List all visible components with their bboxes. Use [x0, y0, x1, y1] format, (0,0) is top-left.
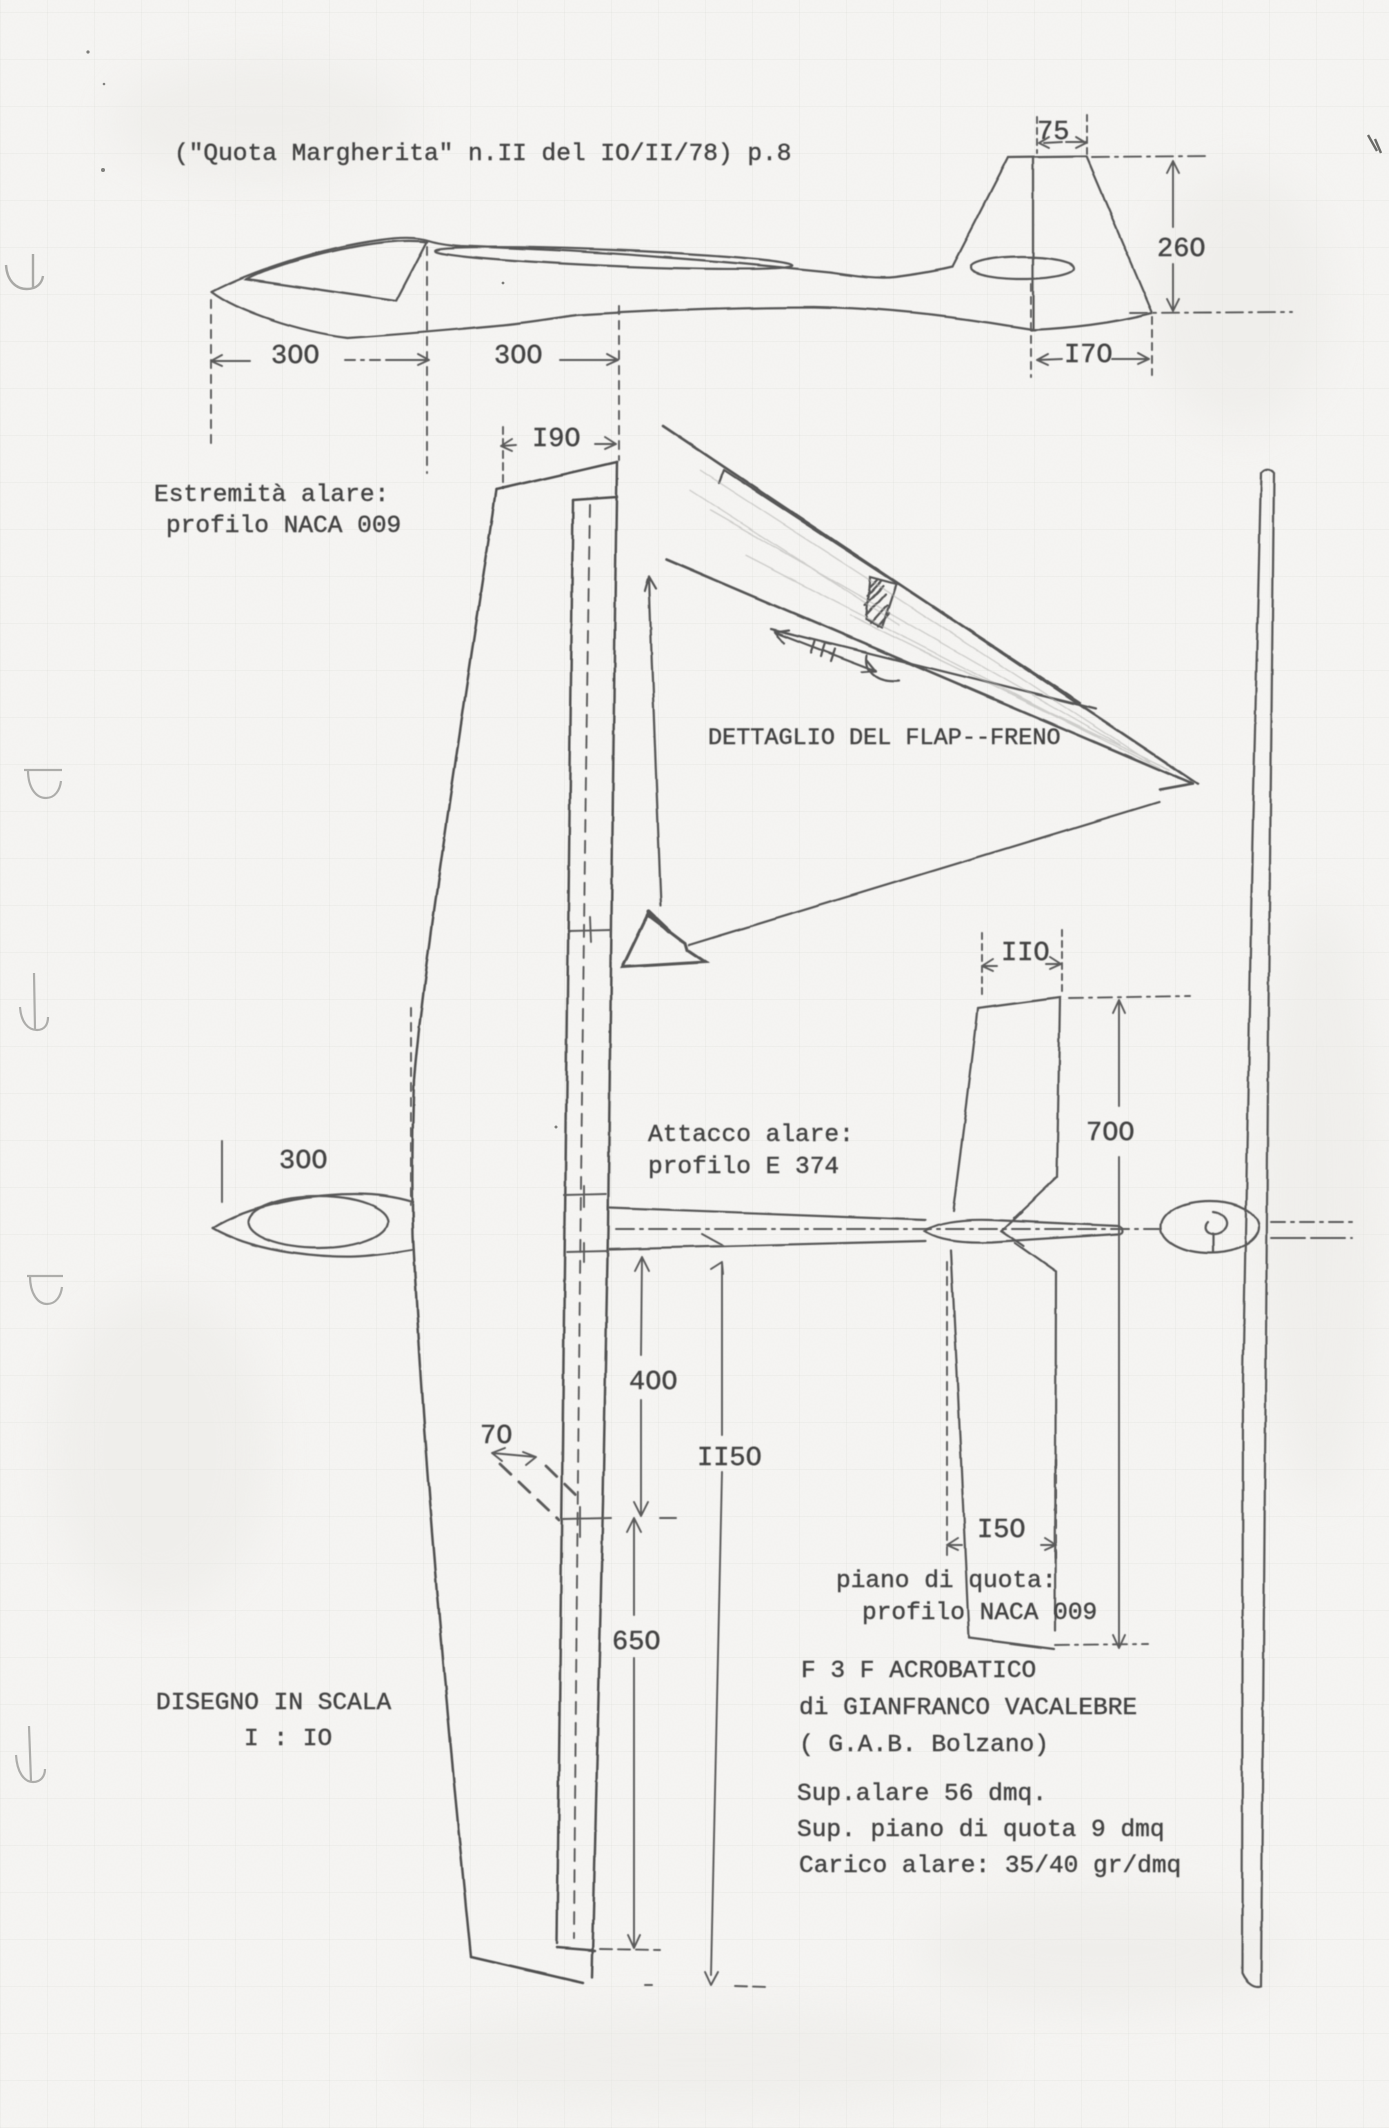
svg-text:I7O: I7O	[1064, 341, 1113, 371]
svg-text:F 3 F ACROBATICO: F 3 F ACROBATICO	[801, 1658, 1036, 1685]
svg-text:7OO: 7OO	[1086, 1119, 1135, 1149]
svg-text:Sup.alare 56 dmq.: Sup.alare 56 dmq.	[797, 1781, 1047, 1808]
svg-text:3OO: 3OO	[494, 342, 543, 372]
svg-text:profilo NACA 009: profilo NACA 009	[862, 1600, 1097, 1627]
svg-text:("Quota Margherita" n.II del I: ("Quota Margherita" n.II del IO/II/78) p…	[174, 141, 792, 168]
svg-text:profilo NACA 009: profilo NACA 009	[166, 513, 401, 540]
svg-text:I : IO: I : IO	[244, 1726, 332, 1753]
svg-text:piano di quota:: piano di quota:	[836, 1568, 1057, 1595]
svg-text:IIO: IIO	[1001, 939, 1050, 969]
svg-text:65O: 65O	[612, 1628, 661, 1658]
svg-text:Carico alare: 35/40 gr/dmq: Carico alare: 35/40 gr/dmq	[799, 1853, 1181, 1880]
svg-text:profilo E 374: profilo E 374	[648, 1154, 839, 1181]
svg-text:7O: 7O	[480, 1422, 512, 1452]
svg-text:I9O: I9O	[532, 425, 581, 455]
svg-text:Sup. piano di quota 9 dmq: Sup. piano di quota 9 dmq	[797, 1817, 1165, 1844]
svg-text:3OO: 3OO	[271, 342, 320, 372]
svg-text:DETTAGLIO DEL FLAP--FRENO: DETTAGLIO DEL FLAP--FRENO	[708, 725, 1061, 752]
svg-text:II5O: II5O	[697, 1444, 762, 1474]
svg-text:Estremità alare:: Estremità alare:	[154, 482, 389, 509]
svg-text:di GIANFRANCO VACALEBRE: di GIANFRANCO VACALEBRE	[799, 1695, 1137, 1722]
svg-text:75: 75	[1037, 118, 1069, 148]
svg-text:26O: 26O	[1157, 235, 1206, 265]
svg-text:3OO: 3OO	[279, 1147, 328, 1177]
svg-text:4OO: 4OO	[629, 1368, 678, 1398]
svg-text:DISEGNO IN SCALA: DISEGNO IN SCALA	[156, 1690, 392, 1717]
svg-text:Attacco alare:: Attacco alare:	[648, 1122, 854, 1149]
svg-text:( G.A.B. Bolzano): ( G.A.B. Bolzano)	[799, 1732, 1049, 1759]
svg-text:I5O: I5O	[977, 1516, 1026, 1546]
